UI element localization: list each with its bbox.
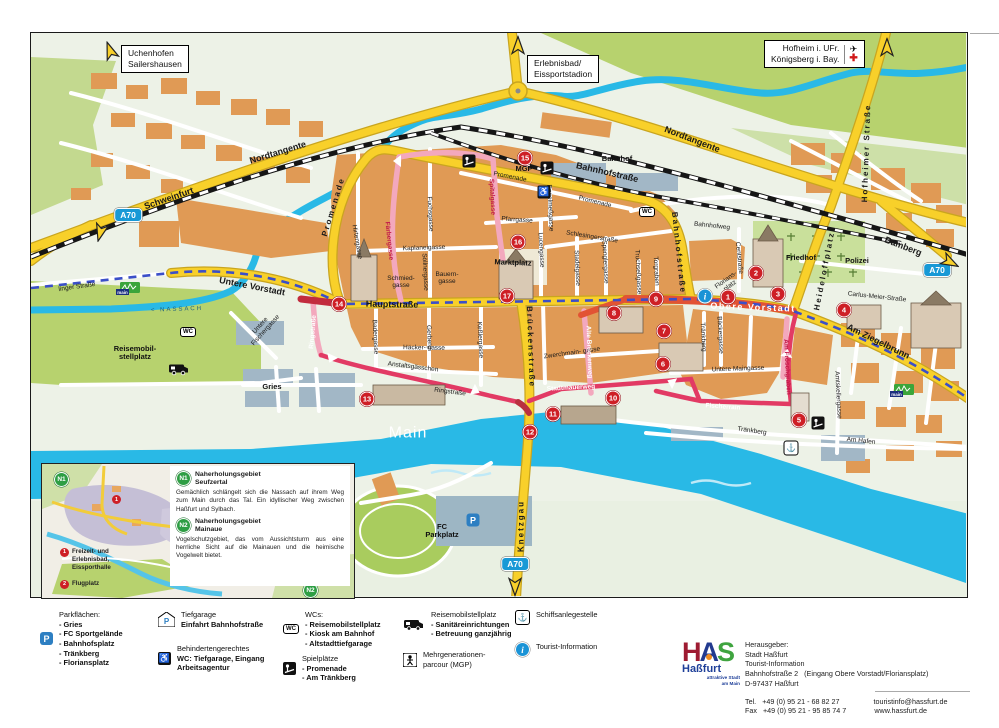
crop-mark: [875, 691, 970, 692]
legend-camper: Reisemobilstellplatz - Sanitäreinrichtun…: [403, 610, 511, 639]
legend-mgp: Mehrgenerationen- parcour (MGP): [403, 650, 485, 669]
sign-uchenhofen: Uchenhofen Sailershausen: [121, 45, 189, 73]
wc-icon: WC: [283, 610, 299, 649]
inset-descriptions: N1 NaherholungsgebietSeufzertal Gemächli…: [170, 466, 350, 586]
n1-badge: N1: [176, 471, 191, 486]
legend-item: - Promenade: [302, 664, 356, 674]
legend-item: - Reisemobilstellplatz: [305, 620, 381, 630]
n2-description: Vogelschutzgebiet, das vom Aussichtsturm…: [176, 536, 344, 561]
red-cross-icon: ✚: [849, 54, 857, 64]
sign-erlebnisbad: Erlebnisbad/ Eissportstadion: [527, 55, 599, 83]
logo-dot: [706, 654, 712, 660]
sign-line: Sailershausen: [128, 59, 182, 69]
ship-dock-icon: ⚓: [515, 610, 530, 625]
legend-item: - Betreuung ganzjährig: [431, 629, 511, 639]
legend-item: - Kiosk am Bahnhof: [305, 629, 381, 639]
n1-badge: N1: [54, 472, 69, 487]
has-logo: HAS Haßfurt attraktive Stadtam Main: [682, 640, 740, 686]
sign-line: Eissportstadion: [534, 69, 592, 79]
website: www.hassfurt.de: [874, 706, 927, 716]
legend-wcs: WC WCs: - Reisemobilstellplatz- Kiosk am…: [283, 610, 381, 649]
wheelchair-icon: ♿: [158, 644, 171, 673]
svg-text:P: P: [164, 617, 170, 626]
legend-item: - Floriansplatz: [59, 658, 123, 668]
legend-item: - FC Sportgelände: [59, 629, 123, 639]
legend-list: - Sanitäreinrichtungen- Betreuung ganzjä…: [431, 620, 511, 639]
legend-parking: P Parkflächen: - Gries- FC Sportgelände-…: [40, 610, 123, 668]
inset-key-2: 2 Flugplatz: [60, 580, 99, 589]
map-frame: SchweinfurtNordtangenteNordtangenteBambe…: [30, 32, 968, 598]
town-map-page: SchweinfurtNordtangenteNordtangenteBambe…: [0, 0, 999, 728]
camper-icon: [403, 610, 425, 639]
legend-list: - Gries- FC Sportgelände- Bahnhofsplatz-…: [59, 620, 123, 668]
inset-marker-1: 1: [112, 495, 121, 504]
sign-line: Hofheim i. UFr.: [783, 43, 840, 53]
mgp-icon: [403, 650, 417, 669]
parking-icon: P: [40, 610, 53, 668]
legend-item: - Tränkberg: [59, 649, 123, 659]
n2-badge: N2: [176, 518, 191, 533]
playground-icon: [283, 654, 296, 683]
inset-panel: N1 N2 1 2 1 Freizeit- und Erlebnisbad, E…: [41, 463, 355, 599]
sign-line: Uchenhofen: [128, 48, 174, 58]
sign-line: Erlebnisbad/: [534, 58, 581, 68]
publisher-block: Herausgeber: Stadt Haßfurt Tourist-Infor…: [745, 640, 948, 716]
legend-item: - Bahnhofsplatz: [59, 639, 123, 649]
legend-tiefgarage: P Tiefgarage Einfahrt Bahnhofstraße: [158, 610, 263, 629]
legend-tourist-info: i Tourist-Information: [515, 642, 597, 657]
legend-item: - Altstadttiefgarage: [305, 639, 381, 649]
sign-line: Königsberg i. Bay.: [771, 54, 839, 64]
crop-mark: [970, 33, 999, 34]
email: touristinfo@hassfurt.de: [874, 697, 948, 707]
legend-item: - Am Tränkberg: [302, 673, 356, 683]
sign-hofheim: Hofheim i. UFr. Königsberg i. Bay. ✈ ✚: [764, 40, 865, 68]
inset-key-1: 1 Freizeit- und Erlebnisbad, Eissporthal…: [60, 548, 160, 571]
tourist-info-icon: i: [515, 642, 530, 657]
legend-item: - Gries: [59, 620, 123, 630]
legend-playgrounds: Spielplätze - Promenade- Am Tränkberg: [283, 654, 356, 683]
legend-list: - Reisemobilstellplatz- Kiosk am Bahnhof…: [305, 620, 381, 649]
underground-parking-icon: P: [158, 610, 175, 629]
legend-list: - Promenade- Am Tränkberg: [302, 664, 356, 683]
n1-description: Gemächlich schlängelt sich die Nassach a…: [176, 489, 344, 514]
legend-item: - Sanitäreinrichtungen: [431, 620, 511, 630]
legend-ship: ⚓ Schiffsanlegestelle: [515, 610, 598, 625]
publisher-label: Herausgeber:: [745, 640, 948, 650]
legend-accessible-wc: ♿ Behindertengerechtes WC: Tiefgarage, E…: [158, 644, 264, 673]
